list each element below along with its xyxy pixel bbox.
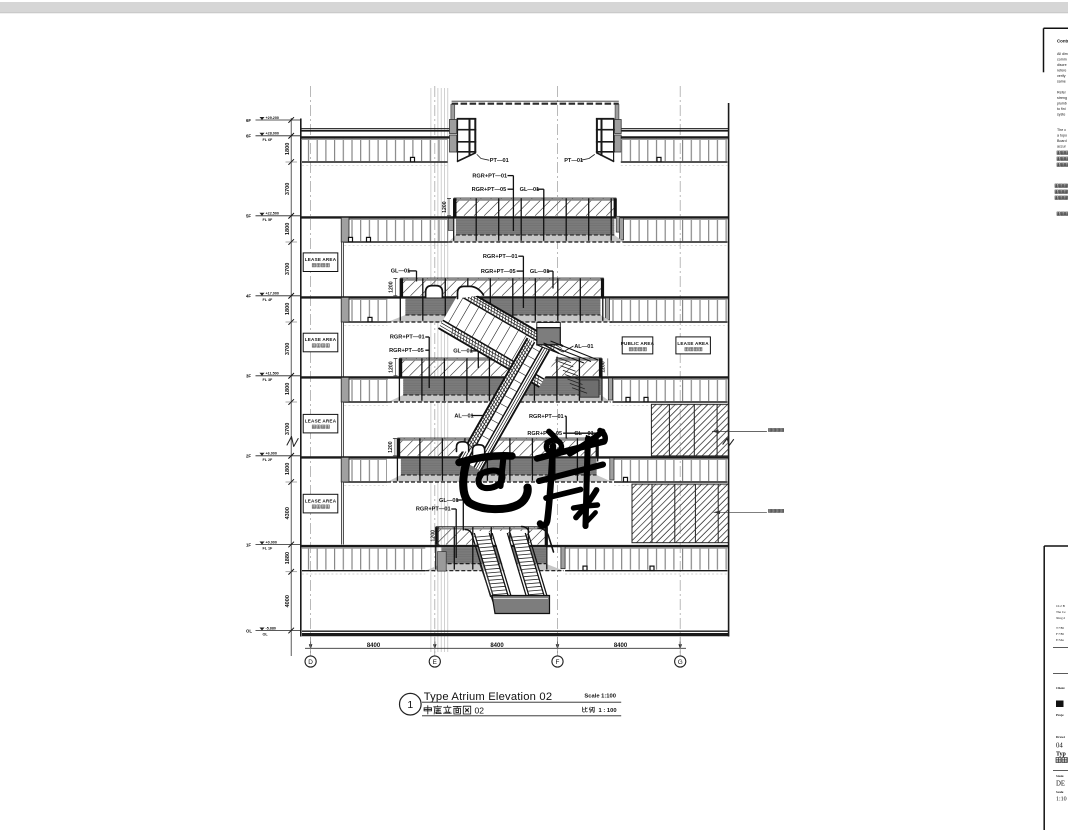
svg-text:02: 02 [475, 705, 485, 715]
svg-text:3700: 3700 [285, 263, 291, 275]
svg-text:Proje: Proje [1056, 713, 1064, 717]
svg-text:Drawi: Drawi [1056, 735, 1065, 739]
svg-text:RGR+PT—05: RGR+PT—05 [472, 187, 507, 193]
svg-text:LEASE AREA: LEASE AREA [677, 341, 709, 346]
svg-text:Contr: Contr [1057, 39, 1068, 44]
svg-text:F: F [556, 659, 560, 666]
svg-text:RGR+PT—05: RGR+PT—05 [389, 348, 424, 354]
svg-text:8400: 8400 [614, 643, 628, 649]
svg-text:6F: 6F [246, 118, 251, 123]
svg-text:1800: 1800 [285, 303, 291, 315]
svg-text:GL—01: GL—01 [439, 498, 459, 504]
svg-text:10.2 B: 10.2 B [1056, 604, 1066, 608]
svg-text:PT—01: PT—01 [564, 158, 583, 164]
svg-text:Client: Client [1056, 686, 1066, 690]
svg-text:Board: Board [1057, 139, 1067, 143]
svg-text:Scale 1:100: Scale 1:100 [584, 694, 616, 700]
svg-text:LEASE AREA: LEASE AREA [305, 418, 337, 423]
svg-text:RGR+PT—01: RGR+PT—01 [529, 414, 564, 420]
svg-text:LEASE AREA: LEASE AREA [305, 337, 337, 342]
svg-text:1: 1 [407, 699, 413, 711]
svg-text:8400: 8400 [490, 643, 504, 649]
svg-text:GL—01: GL—01 [574, 431, 594, 437]
svg-text:LEASE AREA: LEASE AREA [305, 257, 337, 262]
svg-text:04: 04 [1056, 743, 1063, 750]
svg-text:1200: 1200 [601, 361, 607, 373]
svg-text:discre: discre [1057, 63, 1067, 67]
svg-text:FL 6F: FL 6F [263, 138, 274, 142]
svg-text:1200: 1200 [388, 441, 394, 453]
svg-text:DE: DE [1056, 781, 1065, 788]
svg-text:1200: 1200 [389, 361, 395, 373]
svg-text:4F: 4F [246, 294, 251, 299]
svg-text:5F: 5F [246, 214, 251, 219]
svg-text:+11.500: +11.500 [266, 372, 279, 376]
svg-text:AL—01: AL—01 [454, 413, 473, 419]
svg-text:All dim: All dim [1057, 52, 1068, 56]
svg-text:same: same [1057, 79, 1066, 83]
svg-text:refere: refere [1057, 68, 1066, 72]
svg-text:+6.000: +6.000 [266, 452, 277, 456]
svg-text:F:+86: F:+86 [1056, 632, 1064, 636]
svg-text:4000: 4000 [285, 595, 291, 607]
svg-text:syste: syste [1057, 112, 1065, 116]
svg-text:E:Sha: E:Sha [1056, 638, 1064, 642]
svg-text:3700: 3700 [285, 183, 291, 195]
svg-text:1200: 1200 [388, 281, 394, 293]
svg-text:PUBLIC AREA: PUBLIC AREA [621, 341, 655, 346]
svg-text:3700: 3700 [285, 343, 291, 355]
svg-text:4300: 4300 [285, 507, 291, 519]
svg-text:FL 2F: FL 2F [263, 458, 274, 462]
svg-text:3700: 3700 [285, 423, 291, 435]
svg-text:GL—01: GL—01 [453, 349, 473, 355]
svg-text:1800: 1800 [285, 223, 291, 235]
svg-text:RGR+PT—01: RGR+PT—01 [472, 173, 507, 179]
svg-text:RGR+PT—05: RGR+PT—05 [481, 269, 516, 275]
svg-text:8400: 8400 [367, 643, 381, 649]
svg-text:3F: 3F [246, 374, 251, 379]
svg-text:Statu: Statu [1056, 774, 1064, 778]
svg-text:Typ: Typ [1056, 752, 1067, 758]
svg-text:streng: streng [1057, 96, 1067, 100]
svg-text:verify: verify [1057, 74, 1066, 78]
svg-text:OL: OL [263, 633, 269, 637]
svg-text:accur: accur [1057, 144, 1067, 148]
svg-text:D: D [308, 659, 313, 666]
svg-text:The c: The c [1057, 128, 1066, 132]
svg-text:GL—01: GL—01 [391, 269, 411, 275]
svg-text:+28.000: +28.000 [266, 132, 279, 136]
svg-text:+17.000: +17.000 [266, 292, 279, 296]
svg-text:E: E [433, 659, 437, 666]
svg-text:+0.000: +0.000 [266, 540, 277, 544]
svg-text:1880: 1880 [285, 552, 291, 564]
svg-text:a topo: a topo [1057, 133, 1067, 137]
svg-text:2F: 2F [246, 454, 251, 459]
svg-text:RGR+PT—01: RGR+PT—01 [390, 335, 425, 341]
svg-text:1200: 1200 [430, 530, 436, 542]
svg-text:FL 4F: FL 4F [263, 298, 274, 302]
svg-text:G: G [678, 659, 683, 666]
svg-text:to fini: to fini [1057, 107, 1066, 111]
svg-text:T:+86: T:+86 [1056, 626, 1064, 630]
svg-text:FL 3F: FL 3F [263, 378, 274, 382]
svg-text:OL: OL [246, 628, 252, 633]
svg-text:RGR+PT—01: RGR+PT—01 [483, 254, 518, 260]
svg-text:FL 1F: FL 1F [263, 547, 274, 551]
svg-text:+22.500: +22.500 [266, 212, 279, 216]
svg-text:Xing d: Xing d [1056, 616, 1065, 620]
svg-text:GL—01: GL—01 [530, 269, 550, 275]
svg-text:LEASE AREA: LEASE AREA [305, 498, 337, 503]
svg-text:AL—01: AL—01 [574, 344, 593, 350]
svg-text:1800: 1800 [285, 143, 291, 155]
svg-text:PT—01: PT—01 [490, 158, 509, 164]
svg-text:comm: comm [1057, 57, 1067, 61]
svg-text:Type Atrium Elevation 02: Type Atrium Elevation 02 [424, 691, 553, 703]
svg-text:1 : 100: 1 : 100 [599, 708, 617, 714]
svg-text:Refer: Refer [1057, 91, 1067, 95]
svg-text:plumb: plumb [1057, 101, 1067, 105]
svg-text:GL—01: GL—01 [520, 187, 540, 193]
svg-text:1800: 1800 [285, 383, 291, 395]
svg-text:Scale: Scale [1056, 790, 1064, 794]
svg-text:1200: 1200 [442, 201, 448, 213]
svg-text:6F: 6F [246, 134, 251, 139]
svg-text:-5.880: -5.880 [266, 626, 276, 630]
svg-text:The Ce: The Ce [1056, 610, 1066, 614]
svg-text:RGR+PT—01: RGR+PT—01 [416, 507, 451, 513]
svg-text:FL 5F: FL 5F [263, 218, 274, 222]
svg-text:1:10: 1:10 [1056, 797, 1067, 803]
svg-text:1800: 1800 [285, 463, 291, 475]
svg-text:+29.200: +29.200 [266, 116, 279, 120]
svg-text:1F: 1F [246, 542, 251, 547]
